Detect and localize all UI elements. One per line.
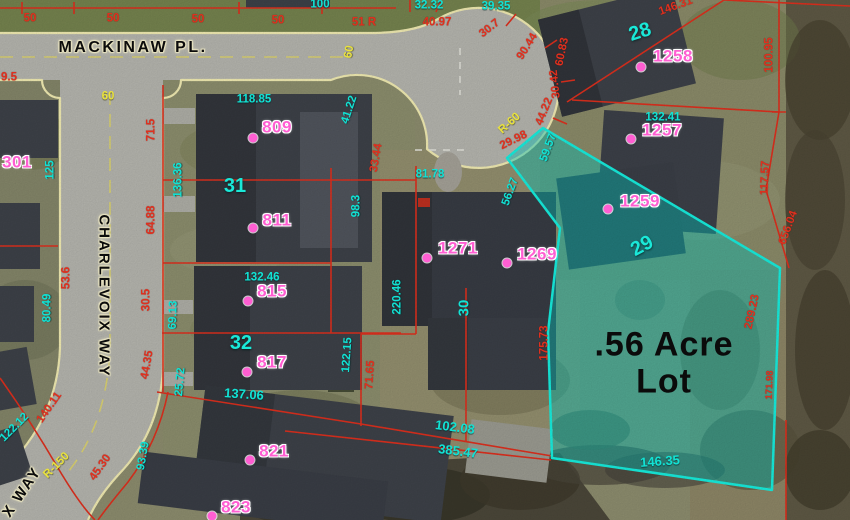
dimension-label: 40.97 bbox=[423, 17, 452, 29]
lot-number: 32 bbox=[230, 333, 252, 353]
address-label: 1258 bbox=[653, 48, 693, 65]
dimension-label: 69.13 bbox=[168, 300, 180, 329]
dimension-label: 71.5 bbox=[146, 119, 158, 141]
address-label: 817 bbox=[257, 354, 287, 371]
parcel-dot bbox=[246, 456, 255, 465]
dimension-label: 81.78 bbox=[416, 169, 445, 181]
dimension-label: 71.65 bbox=[364, 360, 377, 390]
dimension-label: 60 bbox=[343, 45, 357, 60]
parcel-dot bbox=[423, 254, 432, 263]
dimension-label: 100.95 bbox=[764, 37, 776, 72]
address-label: 821 bbox=[259, 443, 289, 460]
dimension-label: 50 bbox=[272, 15, 285, 27]
address-label: 815 bbox=[257, 283, 287, 300]
acre-lot-line1: .56 Acre bbox=[594, 327, 733, 364]
dimension-label: 122.15 bbox=[341, 337, 355, 373]
address-label: 1259 bbox=[620, 193, 660, 210]
dimension-label: 146.35 bbox=[640, 453, 681, 469]
dimension-label: 175.73 bbox=[539, 325, 551, 360]
dimension-label: 171.98 bbox=[765, 370, 776, 399]
dimension-label: 64.88 bbox=[146, 206, 158, 235]
dimension-label: 51 R bbox=[352, 17, 376, 29]
dimension-label: 117.57 bbox=[760, 161, 773, 196]
acre-lot-line2: Lot bbox=[594, 364, 733, 401]
lot-number: 31 bbox=[224, 176, 246, 196]
parcel-dot bbox=[244, 297, 253, 306]
dimension-label: 100 bbox=[310, 0, 329, 11]
dimension-label: 60 bbox=[102, 91, 115, 103]
dimension-label: 30 bbox=[457, 300, 472, 317]
parcel-dot bbox=[249, 134, 258, 143]
parcel-dot bbox=[249, 224, 258, 233]
dimension-label: 80.49 bbox=[42, 294, 54, 323]
parcel-dot bbox=[604, 205, 613, 214]
street-label-charlevoix: CHARLEVOIX WAY bbox=[97, 214, 112, 377]
acre-lot-label: .56 Acre Lot bbox=[594, 327, 733, 402]
parcel-dot bbox=[208, 512, 217, 520]
dimension-label: 30.5 bbox=[141, 289, 153, 311]
parcel-dot bbox=[243, 368, 252, 377]
dimension-label: 39.35 bbox=[482, 1, 511, 13]
address-label: 811 bbox=[263, 212, 292, 229]
parcel-dot bbox=[627, 135, 636, 144]
street-label-mackinaw: MACKINAW PL. bbox=[58, 40, 207, 56]
dimension-label: 136.36 bbox=[173, 162, 185, 197]
address-label: 809 bbox=[262, 119, 292, 136]
dimension-label: 50 bbox=[192, 14, 205, 26]
address-label: 1271 bbox=[438, 240, 478, 257]
parcel-dot bbox=[637, 63, 646, 72]
address-label: 1257 bbox=[642, 122, 682, 139]
dimension-label: 53.6 bbox=[61, 267, 73, 289]
plat-map: MACKINAW PL. CHARLEVOIX WAY X WAY .56 Ac… bbox=[0, 0, 850, 520]
dimension-label: 220.46 bbox=[392, 279, 404, 314]
address-label: 301 bbox=[2, 154, 32, 171]
dimension-label: 98.3 bbox=[351, 195, 363, 217]
dimension-label: 32.32 bbox=[415, 0, 444, 12]
dimension-label: 9.5 bbox=[1, 72, 17, 84]
address-label: 1269 bbox=[517, 246, 557, 263]
dimension-label: 118.85 bbox=[237, 94, 272, 106]
parcel-dot bbox=[503, 259, 512, 268]
dimension-label: 137.06 bbox=[224, 386, 265, 402]
dimension-label: 50 bbox=[107, 13, 120, 25]
dimension-label: 125 bbox=[45, 160, 57, 179]
dimension-label: 50 bbox=[24, 13, 37, 25]
address-label: 823 bbox=[221, 499, 251, 516]
